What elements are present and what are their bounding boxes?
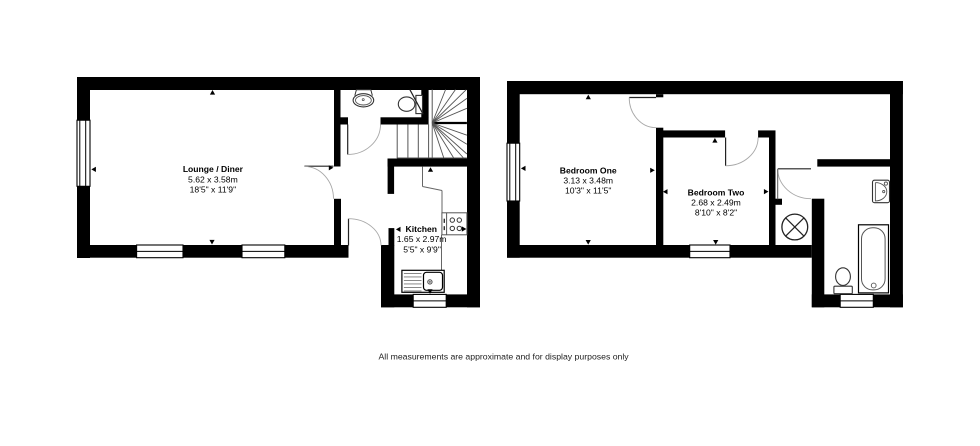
svg-text:18'5" x 11'9": 18'5" x 11'9" [190, 184, 237, 194]
svg-text:8'10" x 8'2": 8'10" x 8'2" [695, 208, 737, 218]
svg-text:Bedroom Two: Bedroom Two [688, 188, 745, 198]
svg-text:10'3" x 11'5": 10'3" x 11'5" [565, 186, 612, 196]
svg-text:1.65 x 2.97m: 1.65 x 2.97m [397, 234, 447, 244]
svg-text:5'5" x 9'9": 5'5" x 9'9" [403, 245, 441, 255]
svg-text:3.13 x 3.48m: 3.13 x 3.48m [563, 175, 613, 185]
svg-text:Kitchen: Kitchen [406, 224, 438, 234]
svg-text:2.68 x 2.49m: 2.68 x 2.49m [691, 198, 741, 208]
svg-text:5.62 x 3.58m: 5.62 x 3.58m [188, 175, 238, 185]
svg-text:Lounge / Diner: Lounge / Diner [183, 164, 244, 174]
svg-text:All measurements are approxima: All measurements are approximate and for… [379, 351, 630, 361]
svg-text:Bedroom One: Bedroom One [560, 165, 617, 175]
